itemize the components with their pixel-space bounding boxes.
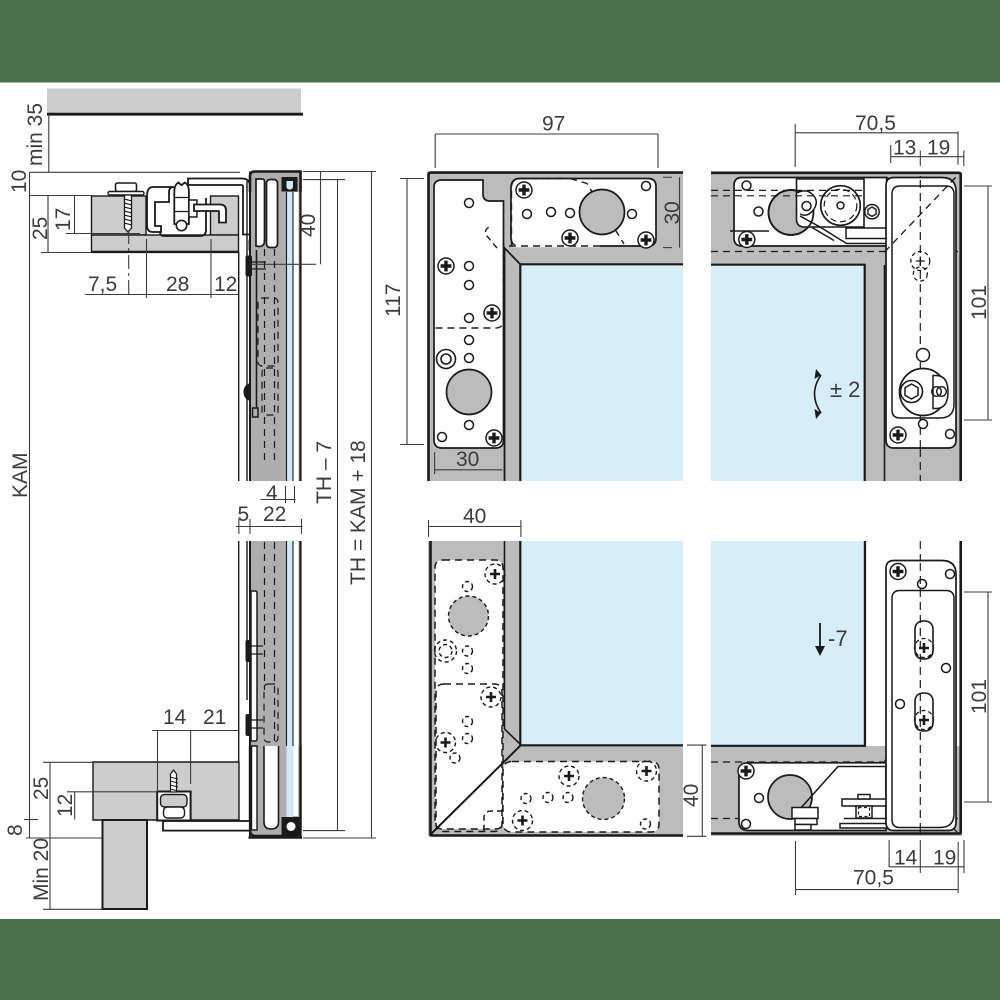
- svg-text:22: 22: [263, 503, 286, 526]
- svg-text:Min 20: Min 20: [30, 838, 53, 901]
- svg-text:40: 40: [463, 505, 486, 528]
- svg-text:70,5: 70,5: [853, 867, 894, 890]
- svg-text:21: 21: [203, 706, 226, 729]
- svg-text:5: 5: [238, 503, 250, 526]
- svg-text:25: 25: [30, 777, 53, 800]
- svg-text:40: 40: [297, 214, 320, 237]
- svg-text:TH – 7: TH – 7: [313, 441, 336, 504]
- svg-text:17: 17: [52, 208, 75, 231]
- svg-text:min 35: min 35: [24, 103, 47, 166]
- svg-text:-7: -7: [828, 626, 848, 651]
- svg-text:KAM: KAM: [9, 452, 32, 498]
- svg-text:30: 30: [456, 448, 479, 471]
- svg-text:28: 28: [166, 273, 189, 296]
- svg-text:8: 8: [4, 824, 27, 836]
- svg-text:14: 14: [163, 706, 187, 729]
- svg-text:117: 117: [382, 284, 405, 317]
- svg-text:19: 19: [927, 137, 950, 160]
- svg-text:TH = KAM + 18: TH = KAM + 18: [347, 440, 370, 585]
- svg-text:25: 25: [29, 217, 52, 240]
- svg-text:30: 30: [661, 201, 684, 224]
- svg-text:± 2: ± 2: [830, 377, 860, 402]
- svg-text:70,5: 70,5: [855, 112, 896, 135]
- svg-text:14: 14: [894, 847, 918, 870]
- svg-text:12: 12: [214, 273, 237, 296]
- svg-text:101: 101: [968, 285, 991, 320]
- svg-text:13: 13: [893, 137, 916, 160]
- svg-text:12: 12: [54, 794, 77, 817]
- svg-text:7,5: 7,5: [88, 273, 117, 296]
- svg-text:10: 10: [8, 170, 31, 193]
- svg-text:4: 4: [266, 482, 278, 505]
- svg-text:40: 40: [680, 784, 703, 807]
- svg-text:97: 97: [542, 113, 565, 136]
- svg-text:19: 19: [933, 847, 956, 870]
- svg-text:101: 101: [968, 679, 991, 714]
